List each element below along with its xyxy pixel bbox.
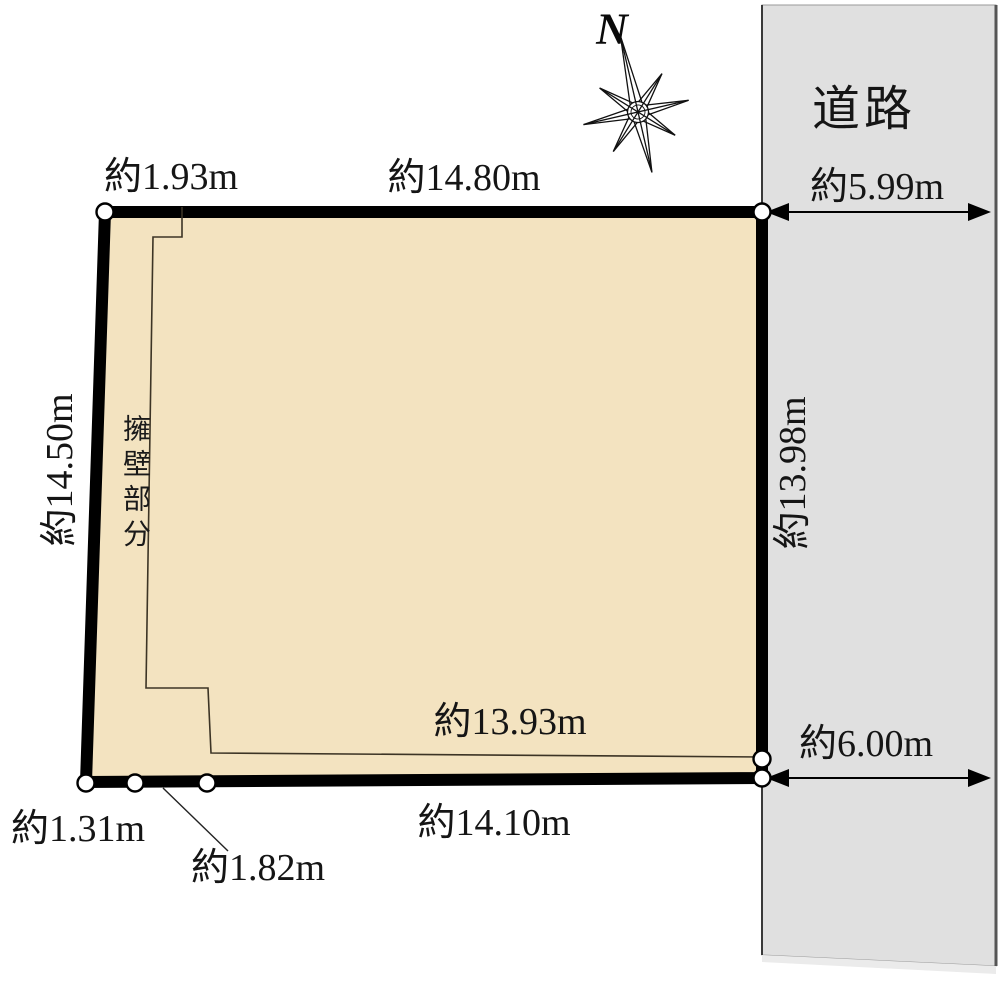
retaining-wall-label: 擁壁部分	[120, 414, 148, 554]
dim-bottom: 約14.10m	[417, 804, 570, 842]
dim-top: 約14.80m	[387, 159, 540, 197]
dim-road-width-top: 約5.99m	[810, 168, 944, 206]
compass-north-label: N	[596, 4, 628, 55]
dim-right: 約13.98m	[774, 396, 812, 549]
boundary-point	[754, 751, 771, 768]
boundary-point	[127, 775, 144, 792]
boundary-point	[754, 770, 771, 787]
dim-road-width-bottom: 約6.00m	[799, 725, 933, 763]
dim-bottom-left-diagonal: 約1.82m	[191, 849, 325, 887]
dim-top-left: 約1.93m	[104, 158, 238, 196]
dim-left: 約14.50m	[41, 393, 79, 546]
parcel-area	[86, 212, 762, 782]
boundary-point	[199, 775, 216, 792]
leader-line-1-82	[163, 788, 228, 851]
boundary-point	[754, 204, 771, 221]
compass-rose-icon	[566, 24, 703, 185]
dim-bottom-left-small: 約1.31m	[11, 810, 145, 848]
boundary-point	[78, 775, 95, 792]
dim-inner-bottom: 約13.93m	[433, 703, 586, 741]
land-plot-diagram: N 道路 約1.93m 約14.80m 約5.99m 約14.50m 擁壁部分 …	[0, 0, 1000, 988]
road-label: 道路	[812, 86, 916, 134]
boundary-point	[97, 204, 114, 221]
